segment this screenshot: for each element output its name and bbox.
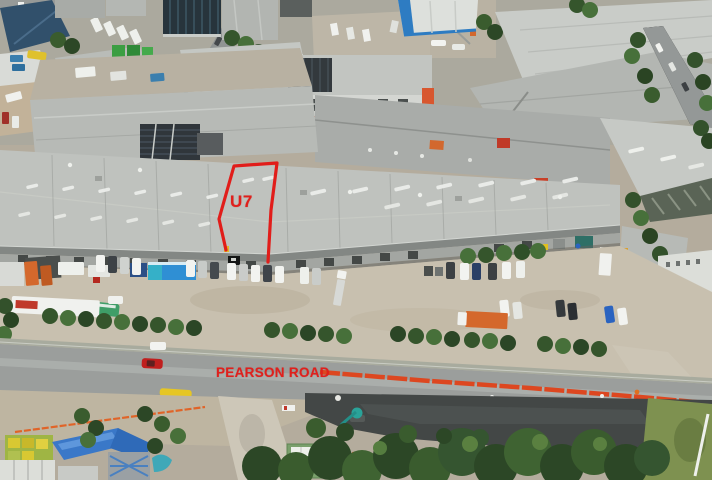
container-orange: [465, 311, 508, 329]
red-car: [141, 358, 162, 369]
road-label: PEARSON ROAD: [216, 365, 330, 380]
aerial-photo-scene: [0, 0, 712, 480]
worker-hi-vis: [635, 390, 640, 395]
unit-label: U7: [230, 192, 253, 212]
aerial-photo: U7 PEARSON ROAD: [0, 0, 712, 480]
rear-warehouse: [30, 48, 318, 165]
